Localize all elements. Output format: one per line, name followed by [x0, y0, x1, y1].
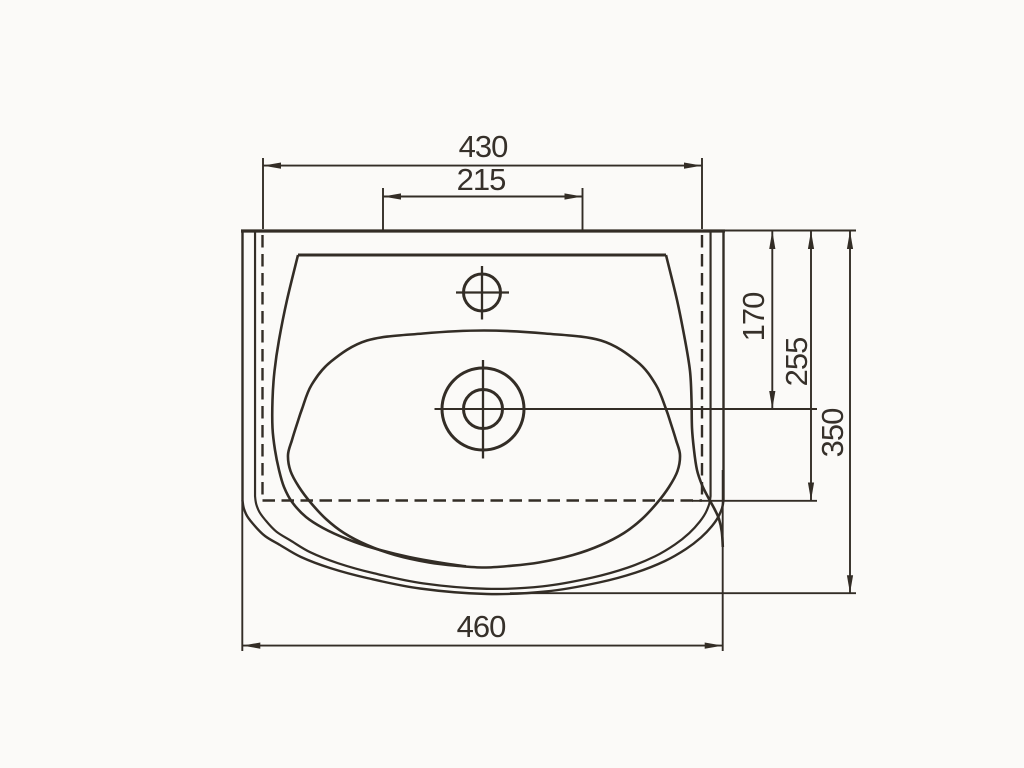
svg-text:460: 460 [457, 609, 506, 644]
svg-text:350: 350 [815, 408, 850, 457]
svg-text:255: 255 [779, 338, 814, 387]
svg-text:430: 430 [459, 129, 508, 164]
svg-text:170: 170 [736, 292, 771, 341]
svg-text:215: 215 [457, 162, 506, 197]
